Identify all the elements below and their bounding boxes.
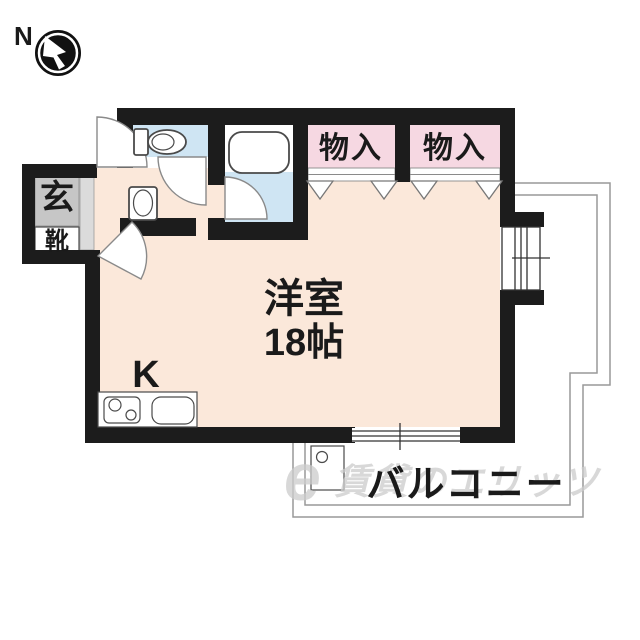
kitchen-sink-icon [152, 397, 194, 424]
sliding-door-icon [352, 423, 460, 450]
entrance-label: 玄 [40, 179, 74, 217]
shoe-cabinet-label: 靴 [45, 228, 69, 255]
watermark-logo: e [284, 440, 321, 514]
toilet-icon [134, 129, 186, 155]
bay-window-icon [502, 227, 550, 290]
kitchen-label: K [132, 354, 160, 396]
bathtub-icon [229, 132, 289, 173]
closet-2-door-strip [410, 168, 500, 181]
entrance-step [80, 172, 94, 250]
closet-1-door-strip [308, 168, 395, 181]
north-label: N [14, 21, 33, 51]
main-room-size: 18帖 [264, 322, 344, 364]
compass: N [14, 21, 78, 73]
floorplan-drawing: N [0, 0, 640, 640]
closet-1-label: 物入 [319, 132, 383, 165]
closet-2-label: 物入 [423, 132, 487, 165]
main-room-name: 洋室 [264, 277, 344, 321]
floorplan-page: N [0, 0, 640, 640]
washbasin-icon [129, 187, 157, 220]
kitchen-counter [98, 392, 197, 427]
balcony-label: バルコニー [366, 464, 565, 506]
